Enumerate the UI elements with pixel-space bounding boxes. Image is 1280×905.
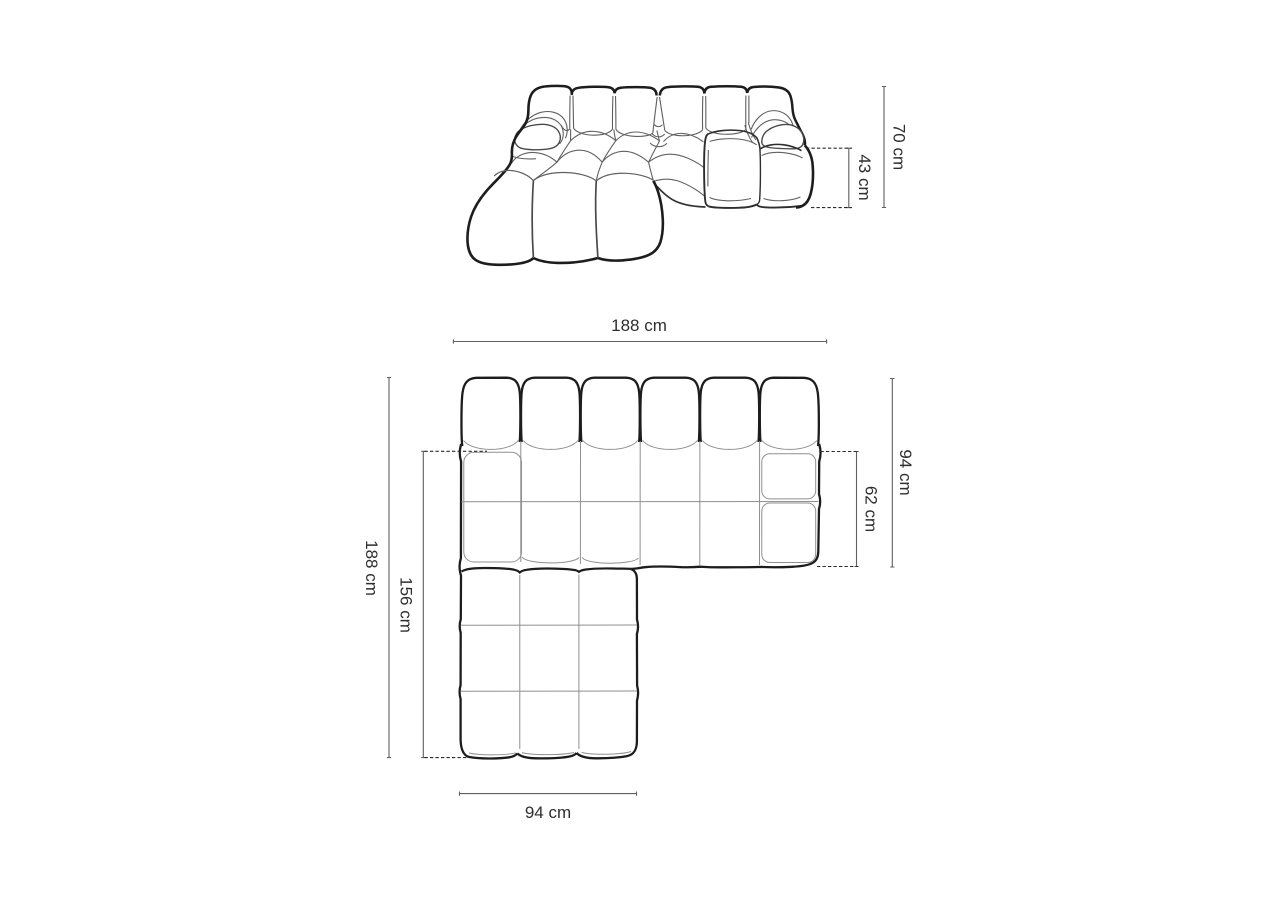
svg-text:156 cm: 156 cm [396,577,415,633]
svg-text:62 cm: 62 cm [862,486,881,532]
svg-text:43 cm: 43 cm [855,154,874,200]
svg-text:94 cm: 94 cm [525,803,571,822]
svg-text:94 cm: 94 cm [896,449,915,495]
svg-text:188 cm: 188 cm [611,316,667,335]
svg-text:188 cm: 188 cm [362,540,381,596]
svg-text:70 cm: 70 cm [890,124,909,170]
